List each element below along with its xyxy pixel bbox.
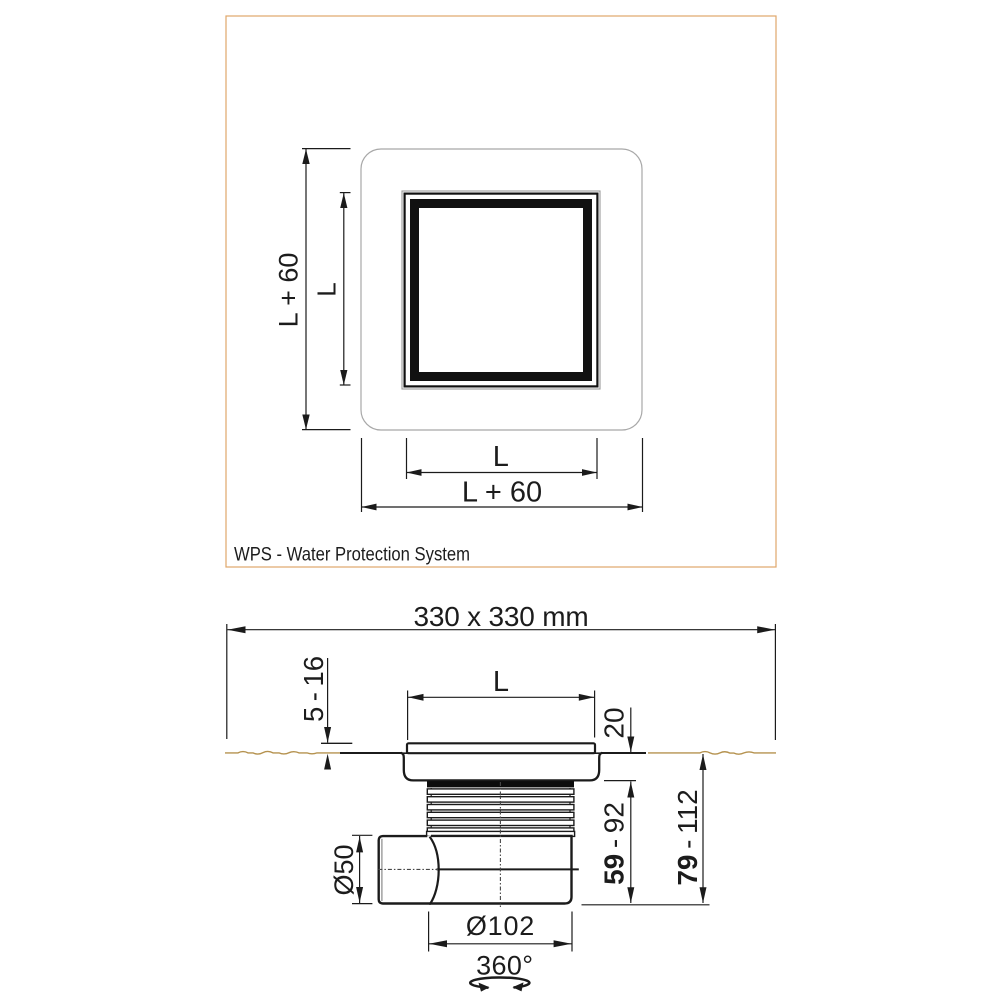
svg-text:WPS - Water Protection System: WPS - Water Protection System	[234, 544, 470, 566]
svg-text:L: L	[493, 441, 509, 473]
svg-text:L: L	[312, 282, 342, 296]
svg-text:Ø102: Ø102	[466, 911, 535, 941]
svg-text:330 x 330 mm: 330 x 330 mm	[413, 601, 588, 632]
svg-text:79 - 112: 79 - 112	[672, 789, 703, 885]
svg-text:5 - 16: 5 - 16	[298, 656, 329, 722]
svg-text:Ø50: Ø50	[329, 844, 359, 895]
svg-text:L: L	[493, 666, 509, 698]
svg-text:59 - 92: 59 - 92	[599, 802, 630, 885]
svg-text:L + 60: L + 60	[274, 253, 304, 328]
svg-text:L + 60: L + 60	[462, 477, 542, 509]
svg-text:360°: 360°	[476, 951, 533, 981]
svg-text:20: 20	[599, 707, 630, 738]
